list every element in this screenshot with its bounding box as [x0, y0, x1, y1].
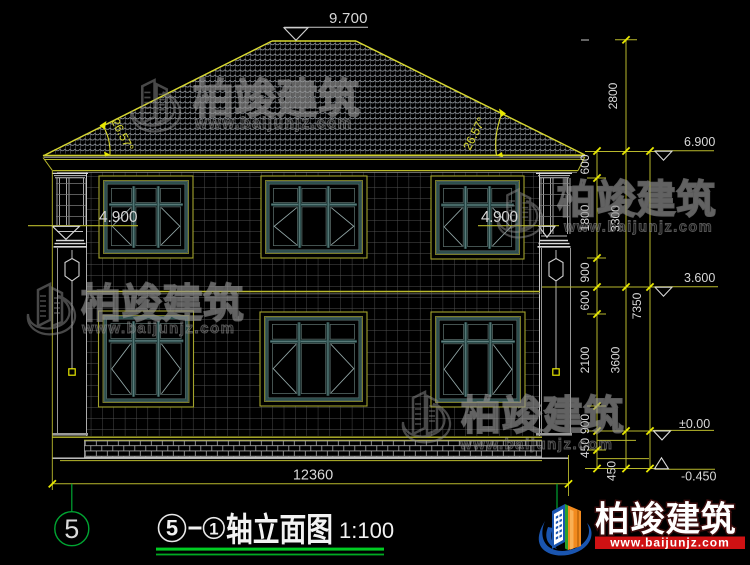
svg-text:3.600: 3.600	[684, 271, 715, 285]
svg-text:柏竣建筑: 柏竣建筑	[461, 394, 624, 438]
svg-text:www.baijunjz.com: www.baijunjz.com	[81, 320, 235, 337]
svg-text:12360: 12360	[293, 468, 333, 484]
svg-text:-0.450: -0.450	[681, 470, 716, 484]
svg-text:www.baijunjz.com: www.baijunjz.com	[609, 536, 730, 550]
svg-text:轴立面图: 轴立面图	[226, 511, 333, 548]
svg-text:柏竣建筑: 柏竣建筑	[557, 179, 716, 222]
svg-text:柏竣建筑: 柏竣建筑	[595, 500, 736, 539]
svg-text:www.baijunjz.com: www.baijunjz.com	[459, 436, 613, 453]
svg-text:600: 600	[578, 290, 592, 310]
svg-text:2800: 2800	[606, 82, 620, 109]
svg-text:450: 450	[605, 461, 619, 481]
svg-text:3600: 3600	[609, 346, 623, 373]
svg-text:1: 1	[209, 520, 218, 539]
svg-text:7350: 7350	[630, 292, 644, 319]
svg-text:±0.00: ±0.00	[679, 417, 710, 431]
svg-text:5: 5	[166, 516, 178, 541]
svg-text:6.900: 6.900	[684, 135, 715, 149]
svg-text:600: 600	[578, 154, 592, 174]
svg-text:1:100: 1:100	[339, 518, 394, 543]
svg-text:www.baijunjz.com: www.baijunjz.com	[194, 115, 353, 132]
svg-text:900: 900	[578, 262, 592, 282]
svg-text:4.900: 4.900	[99, 209, 138, 226]
svg-text:2100: 2100	[578, 346, 592, 373]
svg-text:www.baijunjz.com: www.baijunjz.com	[563, 220, 713, 236]
svg-text:9.700: 9.700	[329, 10, 368, 27]
svg-text:5: 5	[64, 514, 79, 544]
